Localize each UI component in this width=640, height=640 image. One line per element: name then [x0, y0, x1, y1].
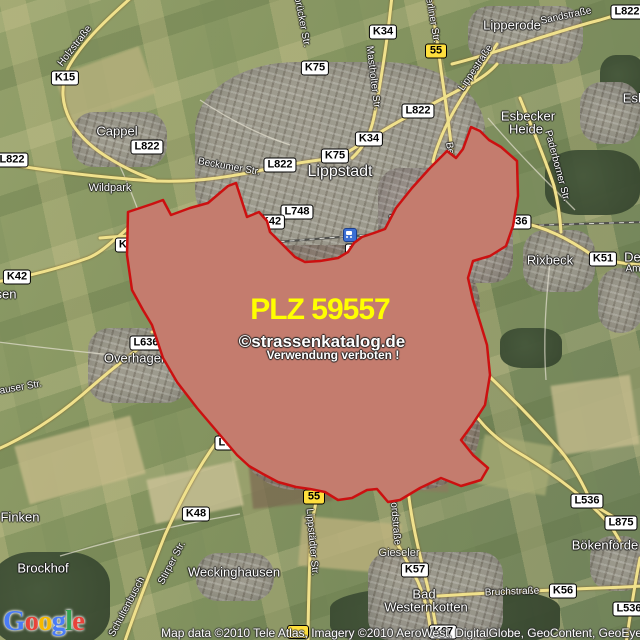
street-label-ro-feld: Roßfeld [399, 235, 435, 252]
road-badge-k56: K56 [549, 584, 577, 599]
place-label-wildpark: Wildpark [89, 182, 132, 194]
watermark-note: Verwendung verboten ! [267, 348, 400, 362]
street-label-lippestra-e: Lippestraße [457, 43, 496, 93]
street-label-holzstra-e: Holzstraße [56, 24, 94, 69]
road-badge-k48: K48 [182, 507, 210, 522]
road-badge-k51: K51 [589, 252, 617, 267]
street-label-stirper-str-: Stirper Str. [156, 540, 188, 587]
street-label-berliner-str-: Berliner Str. [443, 141, 463, 194]
google-logo-letter: g [52, 605, 66, 637]
road-badge-l822: L822 [263, 158, 296, 173]
attribution-text: Map data ©2010 Tele Atlas, Imagery ©2010… [161, 626, 640, 640]
place-label-b-kenf-rde: Bökenförde [572, 538, 639, 553]
place-label-finken: Finken [0, 510, 39, 525]
road-badge-l536: L536 [426, 329, 459, 344]
road-badge-k34: K34 [355, 132, 383, 147]
place-label-ded: Ded [624, 250, 640, 265]
place-label-cappel: Cappel [96, 124, 137, 139]
road-badge-k75: K75 [321, 149, 349, 164]
place-label-gieseler: Gieseler [379, 547, 420, 559]
street-label-nordstra-e: Nordstraße [387, 495, 402, 546]
street-label-berliner-str-: Berliner Str. [422, 0, 442, 44]
street-label-beckumer-str-: Beckumer Str. [197, 156, 261, 178]
road-badge-l748: L748 [214, 436, 247, 451]
plz-code-label: PLZ 59557 [250, 293, 389, 327]
road-badge-k42: K42 [257, 215, 285, 230]
street-label-am: Am [626, 264, 640, 275]
road-badge-l748: L748 [280, 205, 313, 220]
road-badge-l536: L536 [332, 272, 365, 287]
road-badge-k34: K34 [369, 25, 397, 40]
road-badge-55: 55 [439, 278, 459, 293]
street-label-br-cker-str-: brücker Str. [292, 0, 313, 48]
street-label-sandstra-e: Sandstraße [540, 5, 593, 27]
road-badge-k75: K75 [301, 61, 329, 76]
street-label-bruchstra-e: Bruchstraße [485, 586, 540, 599]
road-badge-55: 55 [453, 206, 473, 221]
google-logo-letter: o [25, 605, 39, 637]
google-logo-letter: e [72, 605, 84, 637]
street-label-b-kenf-rder-str-: Bökenförder Str. [435, 343, 472, 414]
place-label-sen: sen [0, 287, 16, 302]
street-label-hauser-str-: hauser Str. [0, 378, 43, 397]
road-badge-l536: L536 [570, 494, 603, 509]
train-station-icon [343, 228, 357, 242]
street-label-rixbecker-str-: Rixbecker Str. [388, 207, 451, 226]
street-label-erwitter-str-: Erwitter Str. [307, 431, 324, 484]
street-label-stirper-str-: Stirper Str. [239, 388, 280, 429]
street-label-schultenbusch: Schultenbusch [107, 575, 148, 638]
street-label-hellinghauser-weg: Hellinghauser Weg [139, 229, 224, 250]
road-badge-l822: L822 [401, 104, 434, 119]
place-label-westernkotten: Westernkotten [384, 600, 468, 615]
google-logo-letter: G [3, 605, 25, 637]
road-badge-k15: K15 [51, 71, 79, 86]
road-badge-l875: L875 [604, 516, 637, 531]
road-badge-l536: L536 [612, 602, 640, 617]
street-label-berliner-str-: Berliner Str. [327, 375, 373, 418]
road-badge-k57: K57 [345, 244, 373, 259]
road-badge-55: 55 [303, 490, 325, 505]
street-label-ro-feld: Roßfeld [441, 229, 477, 244]
street-label-lippst-dter-str-: Lippstädter Str. [304, 508, 321, 576]
road-badge-55: 55 [425, 44, 447, 59]
place-label-rixbeck: Rixbeck [527, 253, 573, 268]
road-badge-l822: L822 [610, 5, 640, 20]
google-logo-letter: o [38, 605, 52, 637]
road-badge-l636: L636 [129, 336, 162, 351]
place-label-lippstadt: Lippstadt [308, 163, 373, 181]
place-label-overhagen: Overhagen [104, 351, 168, 366]
place-label-weckinghausen: Weckinghausen [188, 565, 280, 580]
road-badge-l636: L636 [498, 215, 531, 230]
street-label-mastholter-str-: Mastholter Str. [364, 45, 383, 110]
map-canvas[interactable]: K15L822K3455K75L822K34L822K75L822L822L74… [0, 0, 640, 640]
google-logo[interactable]: Google [3, 605, 84, 638]
road-badge-k57: K57 [401, 563, 429, 578]
road-badge-l822: L822 [130, 140, 163, 155]
road-badge-k42: K42 [3, 270, 31, 285]
place-label-brockhof: Brockhof [17, 561, 68, 576]
place-label-heide: Heide [509, 122, 543, 137]
road-badge-l822: L822 [0, 153, 29, 168]
street-label-paderborner-str-: Paderborner Str. [542, 129, 572, 203]
street-label-westernk-tter-str-: Westernkötter Str. [392, 402, 407, 482]
place-label-esb: Esb [623, 91, 640, 106]
place-label-lipperode: Lipperode [483, 18, 541, 33]
